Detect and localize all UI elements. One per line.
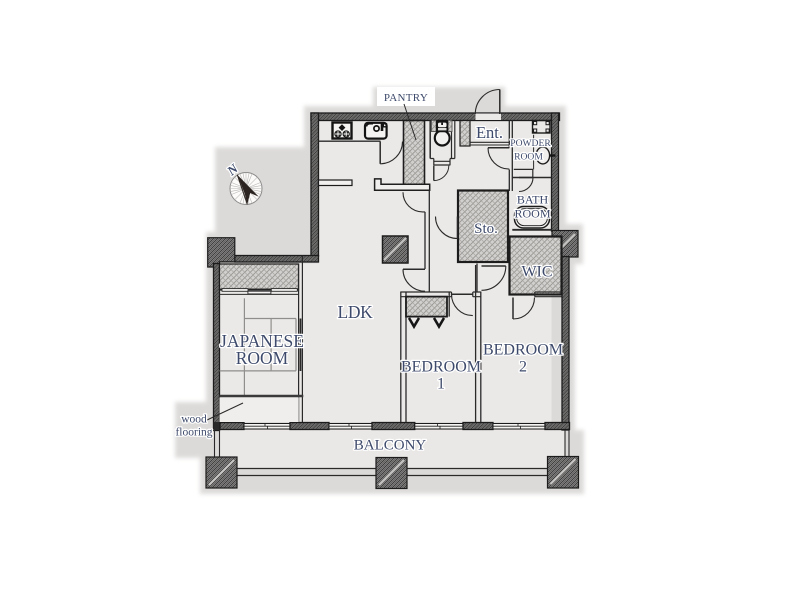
svg-text:POWDER: POWDER [510,138,551,149]
svg-text:2: 2 [519,359,527,376]
svg-text:LDK: LDK [337,302,373,322]
svg-text:Sto.: Sto. [474,221,498,237]
svg-text:PANTRY: PANTRY [384,92,428,104]
svg-text:Ent.: Ent. [476,123,503,142]
svg-text:BATH: BATH [517,193,549,207]
svg-text:ROOM: ROOM [514,207,550,221]
svg-text:WIC: WIC [521,264,552,281]
svg-text:wood: wood [181,414,207,426]
svg-text:BEDROOM: BEDROOM [483,342,563,359]
svg-text:1: 1 [437,376,445,393]
svg-text:ROOM: ROOM [514,152,543,163]
svg-text:BEDROOM: BEDROOM [401,359,481,376]
svg-text:BALCONY: BALCONY [354,438,427,454]
svg-text:ROOM: ROOM [236,348,289,368]
svg-text:flooring: flooring [175,427,212,439]
